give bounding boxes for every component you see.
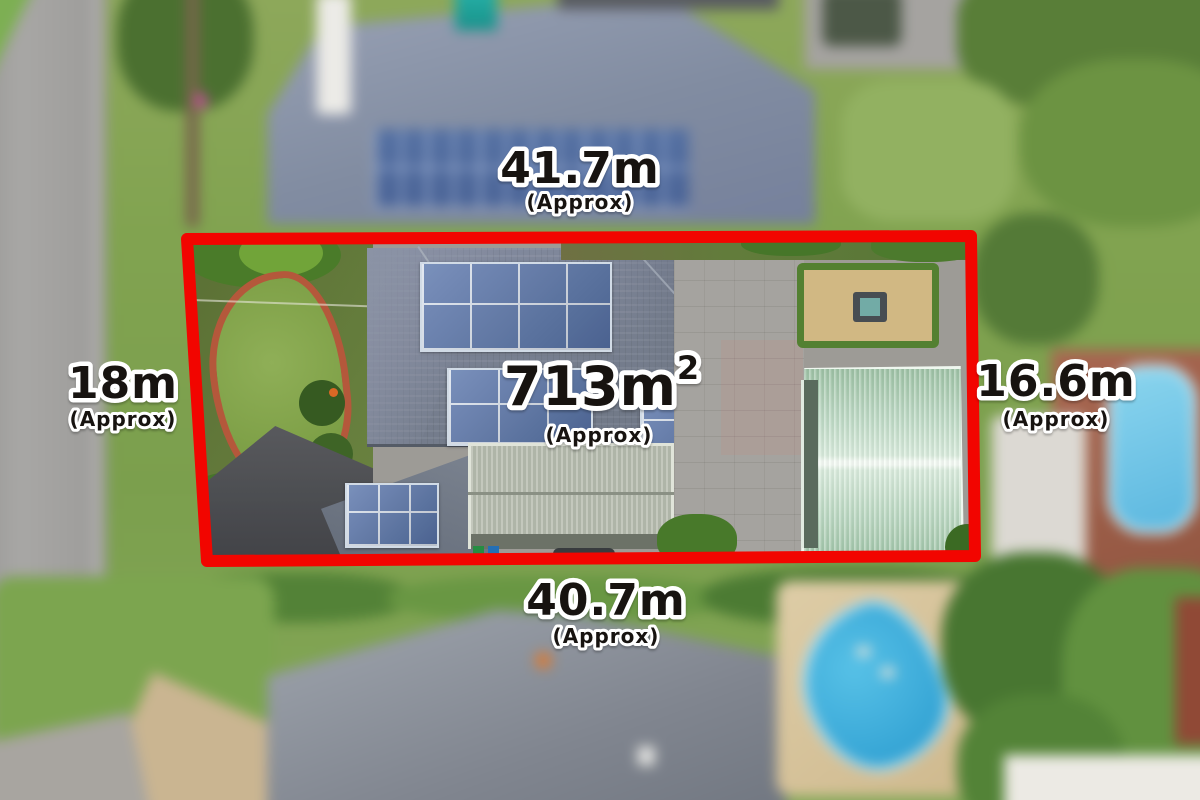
flower-bush bbox=[195, 93, 208, 108]
pergola-beam bbox=[468, 492, 674, 495]
subject-property bbox=[181, 230, 981, 567]
neighbor-solar-panels bbox=[374, 129, 689, 209]
solar-panel-array bbox=[447, 368, 593, 446]
pergola-shadow bbox=[471, 534, 671, 549]
dark-roof-structure bbox=[558, 0, 778, 9]
roof-vent bbox=[535, 652, 552, 669]
green-bin bbox=[473, 546, 484, 557]
teal-shed bbox=[455, 0, 497, 30]
lawn-patch bbox=[841, 80, 1014, 222]
green-garage-roof bbox=[801, 366, 964, 560]
spiky-plant bbox=[299, 380, 345, 426]
neighbor-pool-right bbox=[1107, 364, 1197, 534]
garden-shed bbox=[823, 0, 902, 46]
aerial-property-photo: 41.7m (Approx) 713m2 (Approx) 18m (Appro… bbox=[0, 0, 1200, 800]
paver-stains bbox=[721, 340, 803, 455]
skylight bbox=[638, 747, 655, 766]
brown-roof-edge bbox=[1175, 597, 1200, 744]
white-caravan bbox=[316, 0, 351, 114]
white-roof-building bbox=[1004, 755, 1200, 800]
garden-shrubs bbox=[871, 230, 981, 262]
fence-line bbox=[186, 0, 199, 227]
garage-side-wall bbox=[801, 380, 818, 548]
flower bbox=[329, 388, 338, 397]
tree-canopy bbox=[973, 213, 1099, 344]
blue-bin bbox=[488, 546, 499, 557]
solar-panel-array bbox=[420, 262, 612, 352]
garden-shrubs bbox=[657, 514, 737, 567]
tree-canopy bbox=[1020, 59, 1200, 227]
solar-panel-array bbox=[345, 483, 439, 548]
pool-lounger bbox=[881, 668, 894, 677]
pool-lounger bbox=[857, 647, 870, 656]
glass-tabletop bbox=[860, 298, 880, 316]
